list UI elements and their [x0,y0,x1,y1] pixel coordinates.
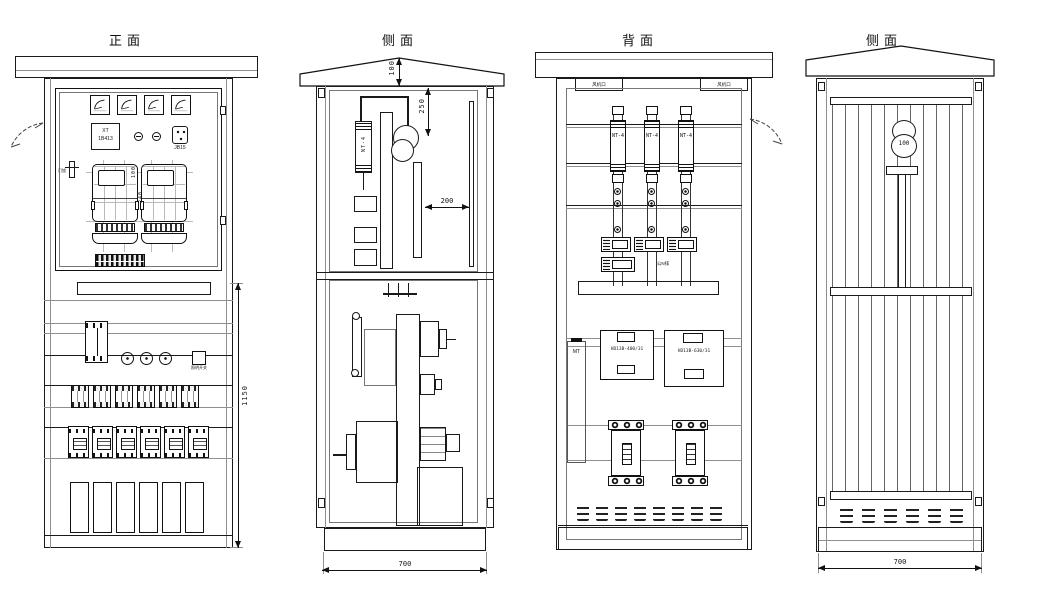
component-profile [439,329,447,349]
component-ring [351,369,359,377]
component-shaft [333,454,346,456]
mccb-body [611,430,641,476]
service-socket [172,126,188,144]
kwh-tab [184,201,188,210]
fuse-side: NT-4 [355,121,372,173]
fuse-pad [612,106,624,115]
fuse-pad [680,174,692,183]
fuse-pad [646,174,658,183]
panel-band [830,97,972,105]
dimension-line [399,58,400,86]
door-lock-bar [65,167,79,168]
wire [360,96,362,122]
knife-label: HD13B-400/31 [601,347,653,352]
roof-peaked [804,44,996,78]
slot-plate [578,281,719,295]
fuse-label: NT-4 [645,133,659,139]
kwh-terminal-cover [92,233,138,244]
dim-label-height: 1150 [241,385,249,406]
component-profile [346,434,356,470]
kwh-tab [91,201,95,210]
mccb-unit [608,420,644,486]
roof-slab [535,52,773,78]
louver-row [577,504,722,521]
hole-plate [886,166,918,175]
louver-vent-icon [653,504,665,521]
aux-switch [192,351,206,365]
mccb-terminals [672,420,708,430]
dim-label-depth: 200 [429,197,465,205]
kwh-meter-assembly [141,164,187,244]
component-profile [420,321,439,357]
kwh-terminal-block [95,223,135,232]
mcb-unit [115,385,133,408]
door-edge-strip [469,101,474,267]
fuse-body: NT-4 [678,120,694,172]
screw-icon [648,188,655,195]
main-breaker [85,321,108,363]
screw-icon [682,200,689,207]
fuse-body: NT-4 [644,120,660,172]
ct-icon [140,352,153,365]
knife-label: HD13B-630/31 [665,349,723,354]
mccb-unit [672,420,708,486]
dimension-line [425,207,469,208]
corner-post [975,497,982,506]
louver-vent-icon [596,504,608,521]
fuse-label: NT-4 [361,136,367,152]
louver-vent-icon [634,504,646,521]
frame-line [973,78,974,552]
mccb-terminals [608,420,644,430]
mccb-terminals [672,476,708,486]
dim-label-drop: 250 [418,98,426,114]
busbar-clamp-row [601,237,697,252]
frame-line [486,86,487,528]
mcb-unit [137,385,155,408]
fuse-body: NT-4 [610,120,626,172]
component-bracket [364,329,396,386]
roof-line [16,70,257,71]
mt-busbar: MT [567,341,586,463]
frame-line [826,78,827,552]
dim-label-roof: 100 [388,60,396,76]
corner-post [975,82,982,91]
view-title-side-left: 侧面 [372,30,428,49]
bracket [354,196,377,212]
corrugated-panel [832,105,970,492]
hole-dim-label: 100 [893,140,915,147]
breaker-unit [188,426,209,458]
panel-meter [90,95,110,115]
louver-vent-icon [577,504,589,521]
shelf-line [44,323,233,324]
dimension-line [818,568,982,569]
drop-line [898,175,899,287]
bus-strip [413,162,422,258]
roof-line [536,59,772,60]
fuse-pad [612,174,624,183]
component-profile [420,374,435,395]
panel-band [830,491,972,500]
cable-slot-row [70,482,204,533]
panel-meter [117,95,137,115]
mccb-body [675,430,705,476]
divider-line [316,272,494,273]
busbar-clamp [601,237,631,252]
screw-icon [614,188,621,195]
knife-tab [617,332,635,342]
dim-label-width: 700 [375,560,435,568]
kwh-register-window [98,170,125,186]
meter-needle-icon [145,96,163,114]
corner-post [818,82,825,91]
mt-tick [571,338,582,342]
knife-tab [684,369,704,379]
corner-post [318,88,325,98]
mounting-plate [380,112,393,269]
bus-label: 公N排 [648,262,678,267]
panel-meter [144,95,164,115]
shelf-line [44,458,233,459]
louver-vent-icon [950,506,963,523]
component-ring [352,312,360,320]
meter-needle-icon [118,96,136,114]
base-plinth [558,527,748,550]
cable-slot [93,482,112,533]
roof-slab [15,56,258,78]
view-title-back: 背面 [612,30,668,49]
component-profile [435,379,442,390]
panel-band [830,287,972,296]
meter-needle-icon [91,96,109,114]
dim-label-width: 700 [870,558,930,566]
knife-switch: HD13B-400/31 [600,330,654,380]
kwh-terminal-cover [141,233,187,244]
shelf-line [44,333,233,334]
bracket [354,249,377,266]
fuse-pad [680,106,692,115]
cable-duct [417,467,463,526]
kwh-divider [93,198,137,199]
screw-icon [614,200,621,207]
nameplate: XT 1B413 [91,123,120,150]
hinge [220,216,226,225]
slot-plate [77,282,211,295]
ct-icon [121,352,134,365]
base-line [44,535,233,536]
ct-icon [159,352,172,365]
frame-line [325,86,326,528]
knife-tab [617,365,635,374]
wire [360,96,409,98]
corner-post [818,497,825,506]
mcb-unit [159,385,177,408]
screw-icon [682,188,689,195]
mcb-unit [93,385,111,408]
breaker-unit [92,426,113,458]
drop-line [905,175,906,287]
cable-slot [185,482,204,533]
shelf-line [44,300,233,301]
breaker-unit [140,426,161,458]
busbar-clamp [667,237,697,252]
frame-line [50,78,51,548]
hinge [220,106,226,115]
nameplate-line1: XT [92,129,119,135]
kwh-meter [141,164,187,222]
indicator-lamp-icon [134,132,143,141]
fuse-pin [363,173,364,190]
aux-switch-label: 照明开关 [183,366,215,370]
busbar-clamp [634,237,664,252]
bracket [354,227,377,243]
knife-switch: HD13B-630/31 [664,330,724,387]
base-line [819,540,981,541]
component-profile [352,317,362,377]
louver-row [840,506,963,523]
cable-slot [139,482,158,533]
louver-vent-icon [710,504,722,521]
base-plinth [324,528,486,551]
meter-needle-icon [172,96,190,114]
upper-compartment [329,90,478,272]
dim-label-meter-gap: 100 [131,166,137,178]
louver-vent-icon [906,506,919,523]
screw-icon [648,200,655,207]
socket-label: JB15 [166,146,194,152]
kwh-divider [142,198,186,199]
view-title-front: 正面 [92,30,162,49]
panel-meter [171,95,191,115]
breaker-unit [164,426,185,458]
terminal-strip [95,254,145,267]
nameplate-line2: 1B413 [92,137,119,143]
kwh-register-window [147,170,174,186]
kwh-terminal-block [144,223,184,232]
corner-post [487,498,494,508]
mccb-toggle [686,443,696,465]
ct-row [121,352,172,365]
screw-icon [682,226,689,233]
fuse-label: NT-4 [611,133,625,139]
louver-vent-icon [672,504,684,521]
component-shaft [447,339,456,340]
louver-vent-icon [884,506,897,523]
fuse-column: NT-4 [678,106,694,286]
insulator-circle [391,139,414,162]
screw-icon [614,226,621,233]
dim-label-meter-height: 240 [138,191,144,203]
base-line [558,525,748,526]
wire [407,96,409,126]
frame-line [226,78,227,548]
mcb-row [71,385,199,408]
screw-icon [648,226,655,233]
door-lock [69,161,75,178]
cable-slot [116,482,135,533]
fuse-column: NT-4 [644,106,660,286]
engineering-drawing-canvas: 正面 [0,0,1039,603]
busbar-clamp [601,257,635,272]
roof-peaked [298,55,506,88]
breaker-row [68,426,209,458]
fuse-pad [646,106,658,115]
door-lock-label: 门锁 [56,169,68,173]
louver-vent-icon [691,504,703,521]
mt-label: MT [568,350,585,356]
dimension-line [322,570,487,571]
dimension-line [428,88,429,136]
louver-vent-icon [840,506,853,523]
component-profile [420,427,446,461]
kwh-meter-row [92,164,187,244]
mccb-terminals [608,476,644,486]
door-swing-arc-icon [748,116,786,162]
knife-tab [683,333,703,343]
mcb-unit [181,385,199,408]
cable-slot [162,482,181,533]
mccb-toggle [622,443,632,465]
louver-vent-icon [862,506,875,523]
indicator-lamp-icon [152,132,161,141]
dimension-line [238,283,239,548]
mcb-unit [71,385,89,408]
corner-post [318,498,325,508]
mccb-row [608,420,708,486]
door-swing-arc-icon [6,120,46,164]
breaker-unit [68,426,89,458]
breaker-unit [116,426,137,458]
louver-vent-icon [928,506,941,523]
corner-post [487,88,494,98]
component-profile [356,421,398,483]
panel-meter-row [90,95,191,115]
fuse-label: NT-4 [679,133,693,139]
louver-vent-icon [615,504,627,521]
cable-slot [70,482,89,533]
component-profile [446,434,460,452]
